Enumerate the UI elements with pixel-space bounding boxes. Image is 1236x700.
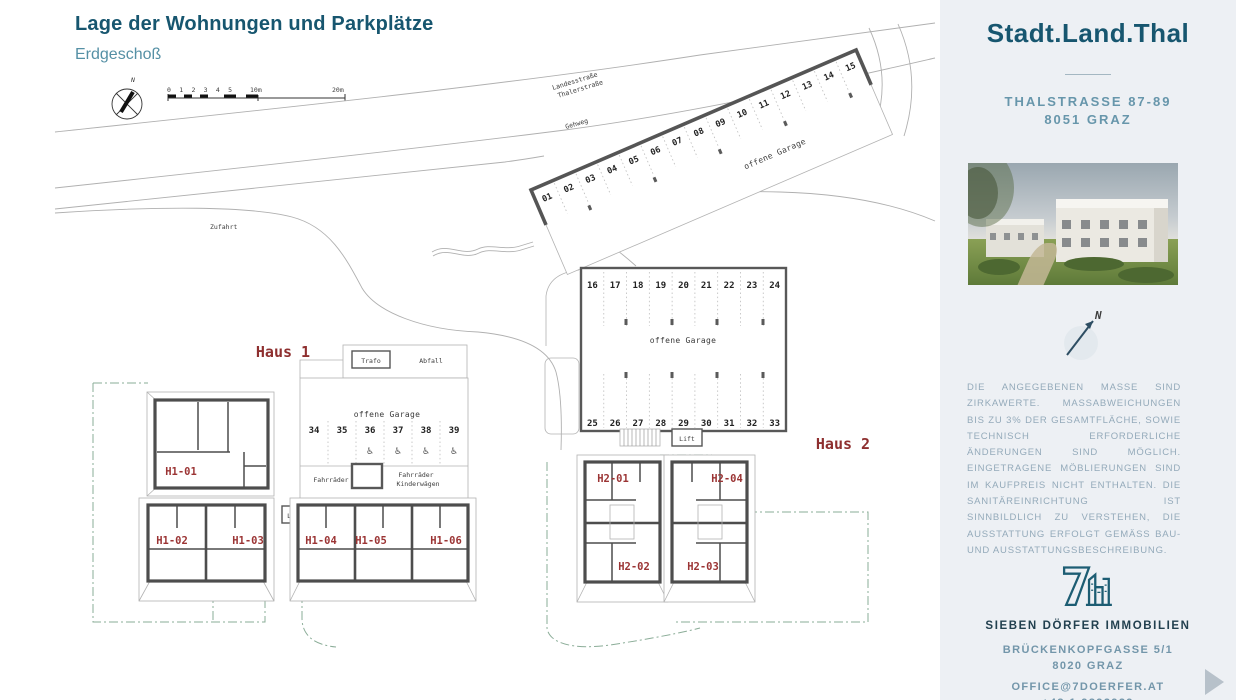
disclaimer-text: DIE ANGEGEBENEN MASSE SIND ZIRKAWERTE. M… [967, 380, 1181, 559]
building-h2-01-02: H2-01 H2-02 [577, 455, 668, 602]
unit-label: H1-01 [165, 466, 197, 478]
realtor-address-line2: 8020 GRAZ [940, 658, 1236, 674]
parking-space-number: 21 [701, 281, 712, 291]
realtor-email[interactable]: OFFICE@7DOERFER.AT [940, 679, 1236, 695]
garage-2-bottom-numbers: 252627282930313233 [587, 419, 780, 429]
divider [1065, 74, 1111, 75]
stroller-room-label: Kinderwägen [396, 480, 439, 488]
svg-text:N: N [1094, 309, 1102, 322]
wheelchair-icon: ♿ [366, 447, 374, 457]
realtor-phone[interactable]: +43 1 9392929 [940, 695, 1236, 700]
parking-space-number: 39 [449, 426, 460, 436]
parking-space-number: 16 [587, 281, 598, 291]
garage-2: 161718192021222324 252627282930313233 of… [581, 268, 786, 446]
svg-text:N: N [130, 76, 135, 84]
street-label: Landesstraße Thalerstraße [551, 70, 604, 101]
parking-space-number: 31 [724, 419, 735, 429]
parking-space-number: 24 [769, 281, 780, 291]
parking-space-number: 37 [393, 426, 404, 436]
parking-space-number: 38 [421, 426, 432, 436]
unit-label: H1-05 [355, 535, 387, 547]
parking-space-number: 30 [701, 419, 712, 429]
building-h1-04-05-06: H1-04 H1-05 H1-06 [290, 498, 476, 601]
parking-space-number: 25 [587, 419, 598, 429]
realtor-contact: OFFICE@7DOERFER.AT +43 1 9392929 [940, 679, 1236, 700]
svg-text:20m: 20m [332, 86, 344, 94]
garage-2-label: offene Garage [650, 336, 717, 345]
parking-space-number: 17 [610, 281, 621, 291]
parking-space-number: 35 [337, 426, 348, 436]
unit-label: H2-04 [711, 473, 743, 485]
lift-label: Lift [679, 435, 695, 443]
photo-building [1056, 199, 1168, 262]
unit-label: H1-06 [430, 535, 462, 547]
parking-space-number: 29 [678, 419, 689, 429]
scale-bar: 0 1 2 3 4 5 10m 20m [167, 86, 345, 101]
parking-space-number: 19 [655, 281, 666, 291]
project-address-line1: THALSTRASSE 87-89 [940, 93, 1236, 111]
parking-space-number: 18 [633, 281, 644, 291]
unit-label: H2-02 [618, 561, 650, 573]
parking-space-number: 33 [769, 419, 780, 429]
utilities-section: Trafo Abfall [300, 345, 467, 378]
building-h1-01: H1-01 [147, 392, 274, 496]
parking-space-number: 28 [655, 419, 666, 429]
parking-space-number: 34 [309, 426, 320, 436]
unit-label: H2-03 [687, 561, 719, 573]
project-rendering-photo [968, 163, 1178, 285]
wheelchair-icon: ♿ [450, 447, 458, 457]
sidebar-north-arrow: N [1055, 303, 1119, 367]
next-page-arrow[interactable] [1205, 669, 1224, 695]
site-plan: N 0 1 2 3 4 5 10m 20m L [0, 0, 940, 700]
parking-space-number: 26 [610, 419, 621, 429]
wheelchair-icon: ♿ [394, 447, 402, 457]
parking-space-number: 27 [633, 419, 644, 429]
haus1-label: Haus 1 [256, 343, 310, 361]
photo-hedge [978, 259, 1020, 275]
realtor-address: BRÜCKENKOPFGASSE 5/1 8020 GRAZ [940, 642, 1236, 674]
abfall-label: Abfall [419, 357, 443, 365]
realtor-address-line1: BRÜCKENKOPFGASSE 5/1 [940, 642, 1236, 658]
project-address: THALSTRASSE 87-89 8051 GRAZ [940, 93, 1236, 129]
project-brand: Stadt.Land.Thal [940, 18, 1236, 49]
garage-3: offene Garage 343536373839 ♿♿♿♿ Fahrräde… [300, 378, 468, 500]
parking-space-number: 36 [365, 426, 376, 436]
garage-3-label: offene Garage [354, 410, 421, 419]
photo-hedge [1118, 267, 1174, 283]
parking-space-number: 32 [746, 419, 757, 429]
svg-text:0 1 2 3 4 5: 0 1 2 3 4 5 [167, 86, 234, 94]
unit-label: H1-04 [305, 535, 337, 547]
unit-label: H1-03 [232, 535, 264, 547]
haus2-label: Haus 2 [816, 435, 870, 453]
brochure-page: Lage der Wohnungen und Parkplätze Erdges… [0, 0, 1236, 700]
unit-label: H2-01 [597, 473, 629, 485]
realtor-name: SIEBEN DÖRFER IMMOBILIEN [940, 620, 1236, 632]
photo-hedge [1064, 257, 1124, 271]
wheelchair-icon: ♿ [422, 447, 430, 457]
compass-icon: N [112, 76, 142, 119]
building-h2-04-03: H2-04 H2-03 [664, 455, 755, 602]
trafo-label: Trafo [361, 357, 381, 365]
bike-room-label: Fahrräder [313, 476, 348, 484]
garage-2-top-numbers: 161718192021222324 [587, 281, 781, 291]
bike-room-label: Fahrräder [398, 471, 433, 479]
realtor-logo [1061, 556, 1115, 608]
access-road-label: Zufahrt [210, 223, 237, 231]
project-address-line2: 8051 GRAZ [940, 111, 1236, 129]
parking-space-number: 22 [724, 281, 735, 291]
building-h1-02-03: H1-02 H1-03 [139, 498, 274, 601]
unit-label: H1-02 [156, 535, 188, 547]
svg-text:10m: 10m [250, 86, 262, 94]
parking-space-number: 23 [746, 281, 757, 291]
info-sidebar: Stadt.Land.Thal THALSTRASSE 87-89 8051 G… [940, 0, 1236, 700]
parking-space-number: 20 [678, 281, 689, 291]
